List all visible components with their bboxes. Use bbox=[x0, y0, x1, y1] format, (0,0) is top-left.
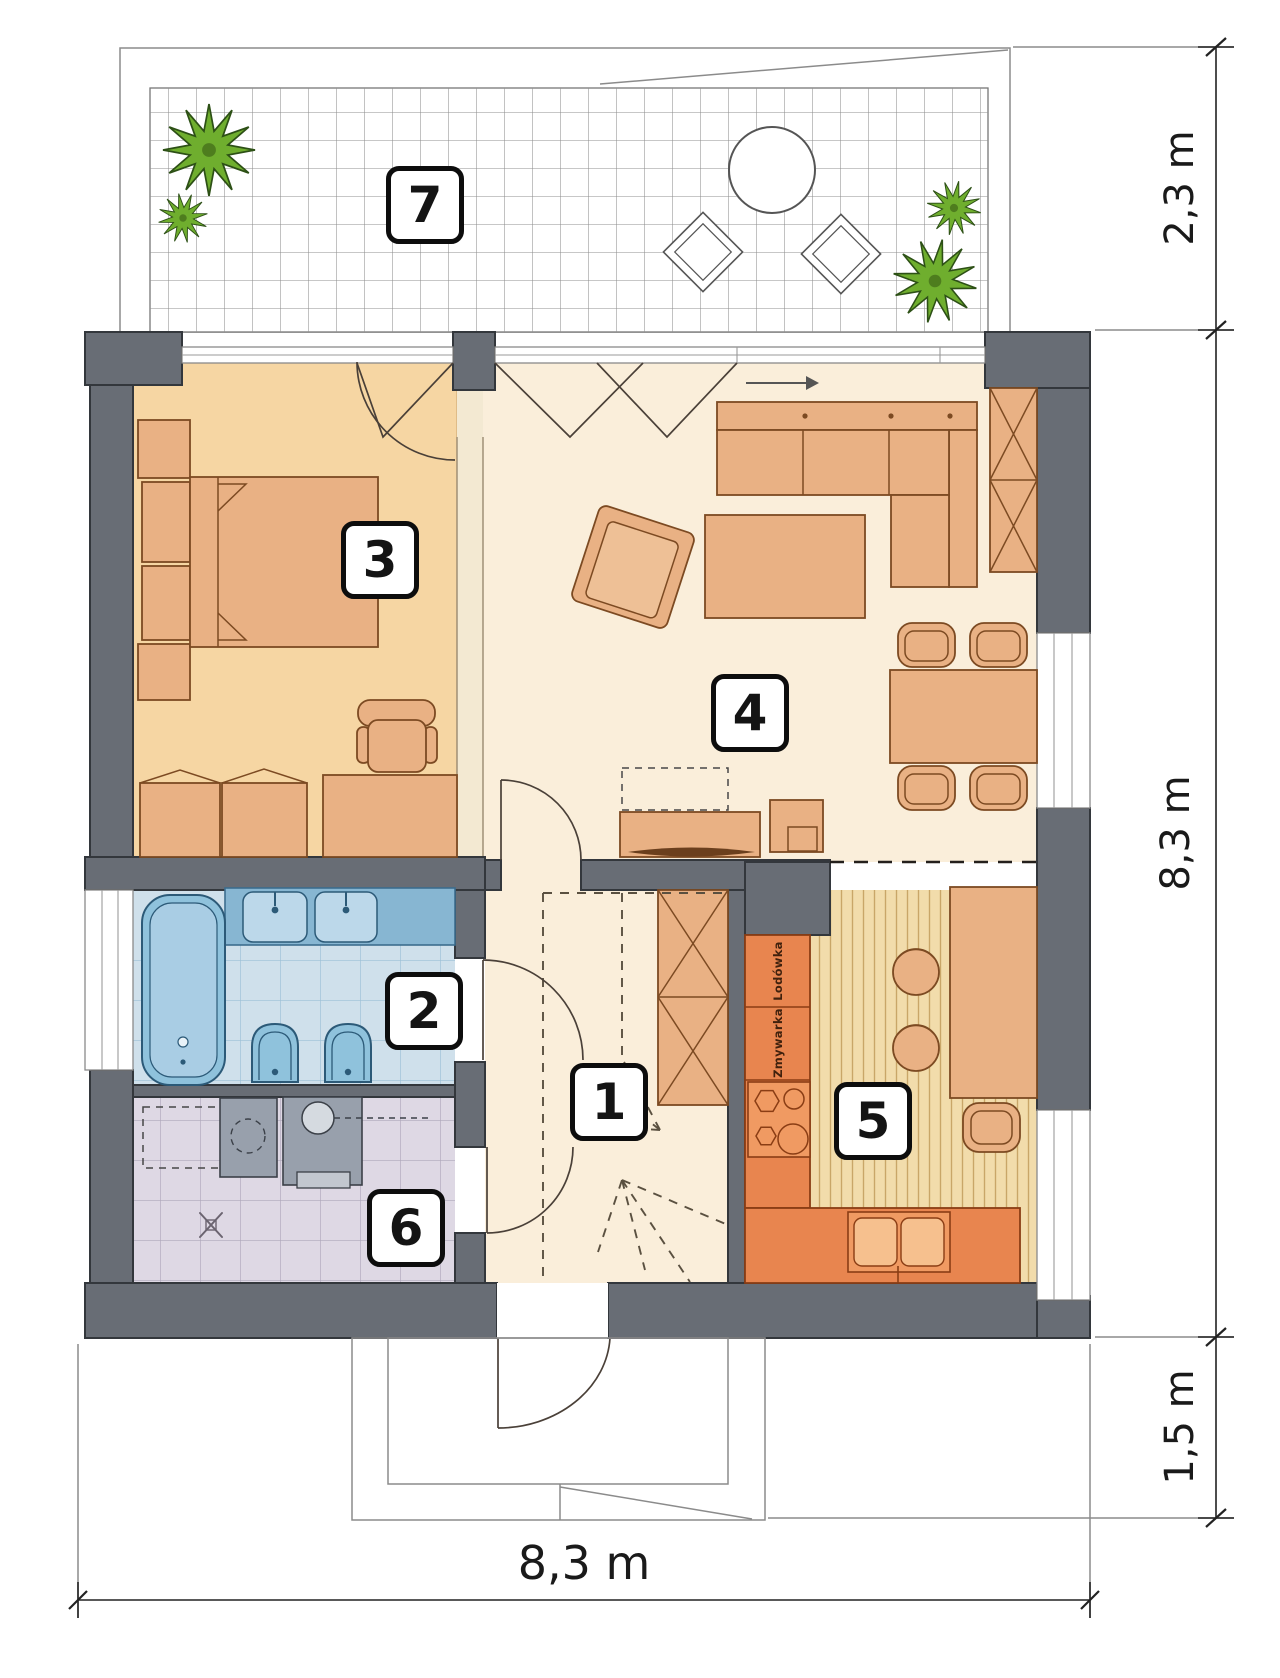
wall-hall-bathroom-b bbox=[455, 1062, 485, 1147]
dishwasher-label: Zmywarka bbox=[771, 1008, 785, 1078]
bedroom-cabinet-bottom bbox=[138, 644, 190, 700]
wall-left-lower bbox=[90, 1070, 133, 1300]
terrace bbox=[120, 48, 1010, 332]
dresser bbox=[140, 770, 220, 857]
coffee-table bbox=[705, 515, 865, 618]
partition-strip bbox=[457, 362, 483, 857]
bedroom-cabinet-top bbox=[138, 420, 190, 478]
desk-chair bbox=[357, 700, 437, 772]
wall-top-left-corner bbox=[85, 332, 182, 385]
terrace-roof-line bbox=[600, 50, 1008, 84]
wall-bedroom-bathroom bbox=[85, 857, 485, 890]
kitchen-sink bbox=[848, 1212, 950, 1283]
window-top-living bbox=[495, 347, 985, 363]
wall-right-upper bbox=[1037, 388, 1090, 633]
window-right-upper bbox=[1037, 633, 1090, 808]
dining-chair bbox=[898, 766, 955, 810]
wall-bathroom-utility bbox=[133, 1085, 455, 1097]
living-wardrobe bbox=[990, 388, 1037, 572]
desk bbox=[323, 775, 457, 857]
wall-right-middle bbox=[1037, 808, 1090, 1110]
washing-machine bbox=[220, 1098, 277, 1177]
room-label-3: 3 bbox=[341, 521, 419, 599]
wall-hall-bathroom-a bbox=[455, 890, 485, 958]
wall-top-right-corner bbox=[985, 332, 1090, 388]
wall-bottom-left bbox=[85, 1283, 497, 1338]
entrance-door bbox=[498, 1338, 610, 1428]
toilet bbox=[325, 1024, 371, 1082]
toilet bbox=[252, 1024, 298, 1082]
dimension-terrace-depth: 2,3 m bbox=[1157, 130, 1203, 245]
wall-hall-bathroom-c bbox=[455, 1233, 485, 1283]
kitchen-chair bbox=[893, 949, 939, 995]
floor-plan-drawing bbox=[0, 0, 1280, 1678]
window-top-bedroom bbox=[182, 347, 453, 363]
wall-left-upper bbox=[90, 385, 133, 890]
dimension-house-width: 8,3 m bbox=[518, 1536, 651, 1590]
room-label-2: 2 bbox=[385, 972, 463, 1050]
entrance-opening bbox=[497, 1283, 608, 1338]
room-label-5: 5 bbox=[834, 1082, 912, 1160]
room-label-1: 1 bbox=[570, 1063, 648, 1141]
room-label-6: 6 bbox=[367, 1189, 445, 1267]
dining-chair bbox=[898, 623, 955, 667]
cooktop bbox=[748, 1082, 810, 1157]
kitchen-table bbox=[950, 887, 1037, 1098]
dining-chair bbox=[970, 766, 1027, 810]
porch bbox=[352, 1338, 765, 1520]
dresser bbox=[222, 769, 307, 857]
nightstand bbox=[142, 482, 190, 562]
fridge-label: Lodówka bbox=[771, 941, 785, 1001]
sink bbox=[315, 892, 377, 942]
wall-kitchen-left bbox=[728, 890, 745, 1283]
kitchen-chair bbox=[963, 1103, 1020, 1152]
terrace-decking-grid bbox=[150, 88, 988, 332]
room-label-4: 4 bbox=[711, 674, 789, 752]
wall-bottom-right bbox=[608, 1283, 1037, 1338]
room-label-7: 7 bbox=[386, 166, 464, 244]
wall-hall-living-stub bbox=[485, 860, 501, 890]
window-left-bathroom bbox=[85, 890, 133, 1070]
kitchen-chair bbox=[893, 1025, 939, 1071]
wall-top-pier bbox=[453, 332, 495, 390]
hall-wardrobe bbox=[658, 890, 728, 1105]
terrace-round-table bbox=[729, 127, 815, 213]
dining-table bbox=[890, 670, 1037, 763]
wall-kitchen-corner bbox=[745, 862, 830, 935]
nightstand bbox=[142, 566, 190, 640]
bathtub bbox=[142, 895, 225, 1085]
window-right-lower bbox=[1037, 1110, 1090, 1300]
dimension-house-depth: 8,3 m bbox=[1153, 775, 1199, 890]
dining-chair bbox=[970, 623, 1027, 667]
floor-plan-canvas: 1 2 3 4 5 6 7 2,3 m 8,3 m 1,5 m 8,3 m Lo… bbox=[0, 0, 1280, 1678]
sink bbox=[243, 892, 307, 942]
dimension-porch-depth: 1,5 m bbox=[1157, 1369, 1203, 1484]
